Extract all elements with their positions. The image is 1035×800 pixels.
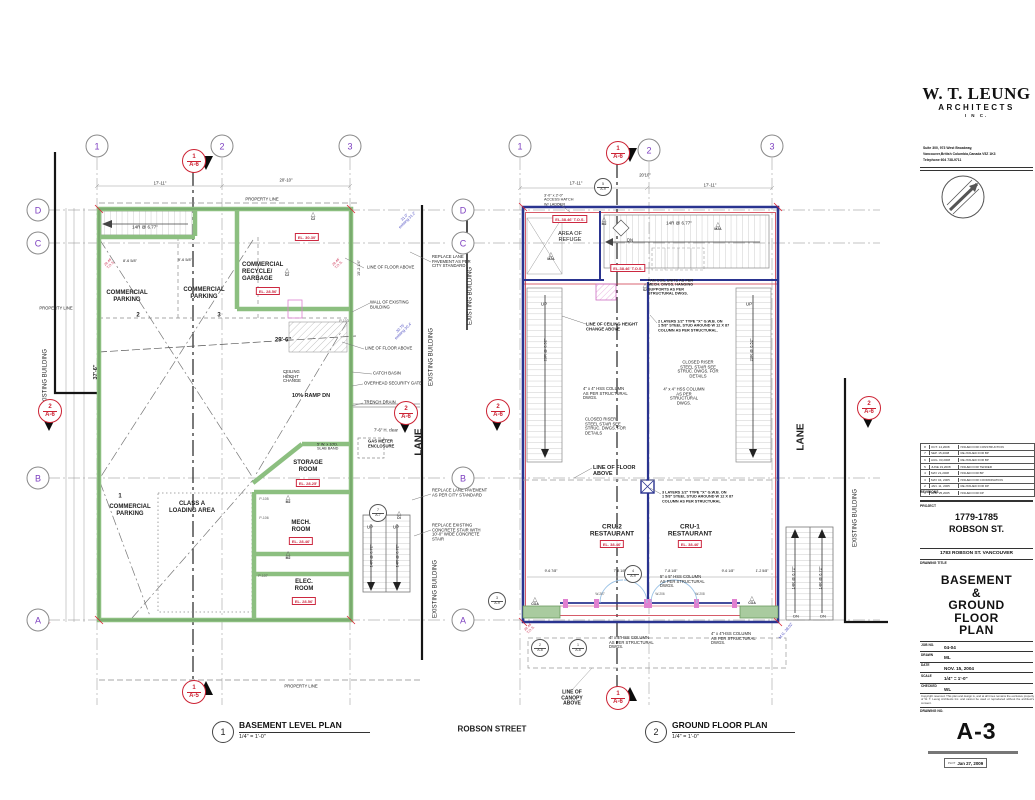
drawing-sheet: COMMERCIAL PARKING2COMMERCIAL PARKING3CO… xyxy=(0,0,1035,800)
section-sheet: A-6 xyxy=(864,409,874,416)
plan-label: TRENCH DRAIN xyxy=(364,401,396,406)
plan-label: COMMERCIAL RECYCLE/ GARBAGE xyxy=(242,262,283,282)
section-marker: 2A-6 xyxy=(486,399,508,421)
detail-sheet: A-8 xyxy=(575,649,581,653)
field-label: JOB NO. xyxy=(921,643,934,647)
section-number: 1 xyxy=(611,691,626,699)
plan-label: 28.46' T.O.S. xyxy=(332,258,344,270)
plan-label: UP xyxy=(541,301,547,306)
section-sheet: A-6 xyxy=(613,699,623,706)
plan-label: 29'-6" xyxy=(275,338,291,345)
project-name: 1779-1785 ROBSON ST. xyxy=(920,511,1033,535)
plan-label: EXISTING BUILDING xyxy=(429,328,436,386)
elevation-tag: EL. 28.25' xyxy=(296,479,320,487)
section-number: 1 xyxy=(187,154,202,162)
detail-sheet: A-8 xyxy=(537,649,543,653)
section-bubble: 2A-6 xyxy=(486,399,510,423)
revision-table: 8OCT. 14,2008ISSUED FOR CONSTRUCTION7SEP… xyxy=(920,443,1035,497)
grid-bubble: 1 xyxy=(86,135,109,158)
section-sheet: A-6 xyxy=(493,412,503,419)
detail-sheet: A-7 xyxy=(375,514,381,518)
plan-label: CLOSED RISER STEEL STAIR SEE STRUC. DWGS… xyxy=(678,361,719,380)
plan-label: 5" x 5" HSS COLUMN AS PER STRUCTURAL DWG… xyxy=(660,575,705,589)
plan-label: 1 xyxy=(118,494,121,501)
section-bubble: 1A-6 xyxy=(182,149,206,173)
section-sheet: A-6 xyxy=(613,154,623,161)
section-number: 2 xyxy=(862,401,877,409)
plan-label: 17'-11" xyxy=(570,182,583,187)
plan-label: 3 LAYERS 1/2" TYPE "X" G.W.B. ON 1 5/8" … xyxy=(662,491,733,504)
field-value: NOV. 15, 2004 xyxy=(944,666,974,671)
firm-inc: I N C. xyxy=(920,113,1033,118)
field-value: 1/4" = 1'-0" xyxy=(944,676,968,681)
section-marker: 2A-6 xyxy=(394,401,416,423)
field-label: SCALE xyxy=(921,674,932,678)
detail-marker: 3A-9 xyxy=(488,592,506,610)
plan-label: 38.46' T.O.S. xyxy=(524,623,536,635)
copyright-note: Copyright reserved. This plan and design… xyxy=(920,695,1035,705)
plan-label: W-208 xyxy=(695,593,704,597)
plan-label: UP xyxy=(393,524,399,529)
plan-label: CEILING HEIGHT CHANGE xyxy=(283,370,301,384)
grid-bubble: D xyxy=(27,199,50,222)
wall-type-marker: △S2 xyxy=(643,284,648,293)
wall-type-label: M2 xyxy=(602,223,607,226)
wall-type-label: COA xyxy=(531,603,539,606)
plan-label: 9'-6 1/8" xyxy=(722,570,735,574)
section-sheet: A-6 xyxy=(45,412,55,419)
plan-label: 15'-2 1/4" xyxy=(357,260,361,276)
plan-label: AREA OF REFUGE xyxy=(558,231,582,243)
plan-label: WALL OF EXISTING BUILDING xyxy=(370,300,409,309)
plan-label: 17'-11" xyxy=(704,184,717,189)
grid-bubble: B xyxy=(452,467,475,490)
plan-label: DN xyxy=(627,239,633,244)
plan-label: 23R @ 6.52" xyxy=(750,339,755,362)
field-value: ML xyxy=(944,655,951,660)
revision-note: ISSUED FOR BP xyxy=(959,471,1034,475)
plan-label: 1'-2 5/8" xyxy=(756,570,769,574)
annotation-layer: COMMERCIAL PARKING2COMMERCIAL PARKING3CO… xyxy=(0,0,1035,800)
project-address: 1783 ROBSON ST. VANCOUVER xyxy=(920,551,1033,556)
section-marker: 2A-6 xyxy=(857,396,879,418)
plan-label: FAN COIL UNITS AS PER MECH. DWGS. HANGIN… xyxy=(648,278,693,295)
elevation-tag: EL. 38.46' xyxy=(600,540,624,548)
section-marker: 1A-6 xyxy=(606,686,628,708)
plan-label: 7'-8 1/8" xyxy=(665,570,678,574)
wall-type-marker: △COA xyxy=(531,598,539,607)
section-number: 1 xyxy=(611,146,626,154)
plan-label: REPLACE EXISTING CONCRETE STAIR WITH 10'… xyxy=(432,524,481,543)
section-number: 2 xyxy=(399,406,414,414)
plan-label: 9'-6 7/8" xyxy=(545,570,558,574)
plan-label: CLOSED RISER STEEL STAIR SEE STRUC. DWGS… xyxy=(585,418,626,437)
revision-row: 3MAY 04, 2005ISSUED FOR COORDINATION xyxy=(921,477,1034,484)
section-number: 2 xyxy=(43,404,58,412)
plan-label: 14R @ 6.72" xyxy=(792,567,797,590)
elevation-tag: EL.38.46' T.O.S. xyxy=(552,215,587,223)
revision-date: OCT. 14,2008 xyxy=(930,445,959,449)
plan-label: DN xyxy=(820,615,826,620)
plan-label: ELEC. ROOM xyxy=(295,579,314,593)
drawing-no-label: DRAWING NO. xyxy=(920,709,1033,713)
plan-label: COMMERCIAL PARKING xyxy=(106,290,147,304)
revision-note: RE-ISSUED FOR BP xyxy=(959,451,1034,455)
revision-note: ISSUED FOR CONSTRUCTION xyxy=(959,445,1034,449)
plan-label: UP xyxy=(367,524,373,529)
plan-label: ROBSON STREET xyxy=(458,724,527,733)
plan-label: P-106 xyxy=(259,517,268,521)
revision-no: 5 xyxy=(921,465,930,469)
plan-label: COMMERCIAL PARKING xyxy=(109,504,150,518)
elevation-tag: EL. 28.56' xyxy=(256,287,280,295)
plan-label: CLASS A LOADING AREA xyxy=(169,501,215,515)
revision-no: 6 xyxy=(921,458,930,462)
caption-number: 2 xyxy=(645,721,667,743)
plan-label: 8'-6 5/8" xyxy=(123,259,137,263)
plan-label: 14R @ 6.72" xyxy=(396,545,401,568)
wall-type-marker: △C2 xyxy=(285,269,290,278)
plan-label: LANE xyxy=(413,428,424,455)
revision-note: ISSUED FOR TENDER xyxy=(959,465,1034,469)
field-label: DATE xyxy=(921,663,929,667)
wall-type-marker: △DI xyxy=(397,512,402,521)
elevation-tag: EL. 28.46' xyxy=(289,537,313,545)
drawing-title-label: DRAWING TITLE xyxy=(920,561,1033,565)
wall-type-label: DI xyxy=(397,517,402,520)
revision-row: 7SEP. 15,2008RE-ISSUED FOR BP xyxy=(921,451,1034,458)
grid-bubble: C xyxy=(452,232,475,255)
firm-address-1: Suite 300, 973 West Broadway, xyxy=(920,146,1035,151)
rule xyxy=(928,751,1018,754)
section-number: 2 xyxy=(491,404,506,412)
detail-marker: 1A-8 xyxy=(569,639,587,657)
revision-no: 3 xyxy=(921,478,930,482)
plan-label: 14R @ 6.72" xyxy=(370,545,375,568)
plan-label: LINE OF CEILING HEIGHT CHANGE ABOVE xyxy=(586,322,638,331)
plan-label: LINE OF FLOOR ABOVE xyxy=(593,465,635,477)
grid-bubble: 3 xyxy=(761,135,784,158)
wall-type-marker: △M2 xyxy=(286,496,291,505)
revisions-label: REVISIONS xyxy=(920,490,1033,494)
grid-bubble: 2 xyxy=(211,135,234,158)
revision-note: ISSUED FOR COORDINATION xyxy=(959,478,1034,482)
grid-bubble: 2 xyxy=(638,139,661,162)
plan-label: 3 xyxy=(217,313,220,320)
wall-type-label: M2A xyxy=(714,228,721,231)
section-bubble: 1A-6 xyxy=(606,141,630,165)
plan-label: 4" x 4"HSS COLUMN AS PER STRUCTURAL DWGS… xyxy=(711,632,756,646)
wall-type-label: S2 xyxy=(643,289,648,292)
plan-label: LINE OF FLOOR ABOVE xyxy=(365,347,412,352)
revision-date: JUNE 19,2008 xyxy=(930,465,959,469)
wall-type-label: M2 xyxy=(286,557,291,560)
firm-address-2: Vancouver,British Columbia,Canada V5Z 1K… xyxy=(920,152,1035,157)
section-marker: 1A-5 xyxy=(182,680,204,702)
rule xyxy=(920,548,1033,549)
plan-label: DN xyxy=(793,615,799,620)
grid-bubble: A xyxy=(27,609,50,632)
plan-label: PROPERTY LINE xyxy=(284,685,317,690)
drawing-title: BASEMENT & GROUND FLOOR PLAN xyxy=(920,574,1033,637)
firm-type: ARCHITECTS xyxy=(920,103,1033,112)
revision-row: 4MAY 21,2008ISSUED FOR BP xyxy=(921,470,1034,477)
plan-label: CRU-2 RESTAURANT xyxy=(590,524,634,539)
plan-label: PROPERTY LINE xyxy=(245,198,278,203)
section-bubble: 2A-6 xyxy=(38,399,62,423)
plan-label: W-207 xyxy=(595,593,604,597)
section-marker: 2A-6 xyxy=(38,399,60,421)
plan-label: 4" x 4"HSS COLUMN AS PER STRUCTURAL DWGS… xyxy=(609,636,654,650)
field-label: CHECKED xyxy=(921,684,937,688)
wall-type-label: C2 xyxy=(311,218,316,221)
caption-number: 1 xyxy=(212,721,234,743)
sheet-number: A-3 xyxy=(920,718,1033,745)
detail-marker: 4A-9 xyxy=(624,565,642,583)
firm-name: W. T. LEUNG xyxy=(920,84,1033,104)
elevation-tag: EL.38.46' T.O.S. xyxy=(610,264,645,272)
revision-date: AUG. 03,2008 xyxy=(930,458,959,462)
plan-label: P-105 xyxy=(259,498,268,502)
rule xyxy=(920,559,1033,560)
rule xyxy=(920,500,1033,502)
detail-sheet: A-9 xyxy=(630,575,636,579)
plot-date-box: PLOT Jan 27, 2009 xyxy=(944,758,987,768)
plan-label: 14R @ 6.72" xyxy=(819,567,824,590)
plan-label: 3'-0" x 2'-0" ACCESS HATCH W/ LADDER xyxy=(544,194,573,207)
plan-label: LINE OF CANOPY ABOVE xyxy=(561,691,582,708)
section-sheet: A-6 xyxy=(401,414,411,421)
plan-label: 4" x 4" HSS COLUMN AS PER STRUCTURAL DWG… xyxy=(663,388,704,407)
revision-no: 4 xyxy=(921,471,930,475)
wall-type-label: M2 xyxy=(286,501,291,504)
revision-date: MAY 21,2008 xyxy=(930,471,959,475)
wall-type-label: M2A xyxy=(547,258,554,261)
section-marker: 1A-6 xyxy=(606,141,628,163)
plot-date-prefix: PLOT xyxy=(948,761,955,765)
caption-scale: 1/4" = 1'-0" xyxy=(672,734,795,740)
revision-date: MAY 04, 2005 xyxy=(930,478,959,482)
plan-label: REPLACE LANE PAVEMENT AS PER CITY STANDA… xyxy=(432,255,471,269)
plan-label: 14R @ 6.77" xyxy=(666,220,692,225)
plan-label: 4" x 4" HSS COLUMN AS PER STRUCTURAL DWG… xyxy=(583,387,628,401)
plan-label: 20'-10" xyxy=(280,179,293,184)
revision-no: 8 xyxy=(921,445,930,449)
rule xyxy=(920,167,1033,171)
detail-sheet: A-9 xyxy=(600,188,606,192)
caption-title: GROUND FLOOR PLAN xyxy=(672,720,795,733)
plan-label: STORAGE ROOM xyxy=(293,460,323,474)
rule xyxy=(920,707,1033,708)
wall-type-marker: △M2A xyxy=(714,223,721,232)
detail-marker: 5A-9 xyxy=(594,178,612,196)
plan-label: LINE OF FLOOR ABOVE xyxy=(367,266,414,271)
detail-marker: 7A-7 xyxy=(369,504,387,522)
plan-label: 7'-6" H. clear xyxy=(374,429,398,434)
project-label: PROJECT xyxy=(920,504,1033,508)
plan-label: UP xyxy=(746,301,752,306)
plan-label: OVERHEAD SECURITY GATE xyxy=(364,382,422,387)
section-bubble: 2A-6 xyxy=(857,396,881,420)
caption-scale: 1/4" = 1'-0" xyxy=(239,734,370,740)
plan-label: 20'10" xyxy=(639,174,651,179)
plan-label: PROPERTY LINE xyxy=(39,307,72,312)
plan-label: 5' W. x 10'D. SLAB BAND xyxy=(317,443,338,452)
plan-label: 37'-6" xyxy=(93,365,99,380)
plan-label: 2 xyxy=(136,313,139,320)
section-marker: 1A-6 xyxy=(182,149,204,171)
plan-label: CRU-1 RESTAURANT xyxy=(668,524,712,539)
plan-label: M.G. 38.02' xyxy=(778,622,794,640)
elevation-tag: EL. 38.46' xyxy=(678,540,702,548)
detail-marker: 2A-8 xyxy=(531,639,549,657)
section-number: 1 xyxy=(187,685,202,693)
section-sheet: A-6 xyxy=(189,162,199,169)
elevation-tag: EL. 30.30' xyxy=(295,233,319,241)
plot-date: Jan 27, 2009 xyxy=(957,761,983,766)
revision-note: RE-ISSUED FOR BP xyxy=(959,458,1034,462)
wall-type-marker: △C2 xyxy=(311,213,316,222)
caption-text: BASEMENT LEVEL PLAN1/4" = 1'-0" xyxy=(239,720,370,740)
plan-label: MECH. ROOM xyxy=(291,520,310,534)
plan-caption: 2GROUND FLOOR PLAN1/4" = 1'-0" xyxy=(645,720,795,743)
plan-label: EXISTING BUILDING xyxy=(433,560,440,618)
plan-label: 28.46' T.O.S. xyxy=(104,258,116,270)
plan-label: 9'-6 5/8" xyxy=(178,258,192,262)
section-bubble: 1A-6 xyxy=(606,686,630,710)
caption-title: BASEMENT LEVEL PLAN xyxy=(239,720,370,733)
wall-type-marker: △M2 xyxy=(602,218,607,227)
field-label: DRAWN xyxy=(921,653,933,657)
section-bubble: 1A-5 xyxy=(182,680,206,704)
caption-text: GROUND FLOOR PLAN1/4" = 1'-0" xyxy=(672,720,795,740)
plan-label: GAS METER ENCLOSURE xyxy=(368,439,394,448)
revision-date: SEP. 15,2008 xyxy=(930,451,959,455)
elevation-tag: EL. 28.56' xyxy=(292,597,316,605)
wall-type-marker: △M2 xyxy=(286,552,291,561)
plan-label: 23R @ 6.52" xyxy=(544,339,549,362)
revision-row: 8OCT. 14,2008ISSUED FOR CONSTRUCTION xyxy=(921,444,1034,451)
grid-bubble: 3 xyxy=(339,135,362,158)
plan-label: 17'-11" xyxy=(154,182,167,187)
revision-no: 2 xyxy=(921,484,930,488)
plan-label: LANE xyxy=(795,423,806,450)
plan-label: EXISTING BUILDING xyxy=(468,267,475,325)
plan-label: W-206 xyxy=(655,593,664,597)
wall-type-marker: △COA xyxy=(748,597,756,606)
revision-note: RE-ISSUED FOR DP xyxy=(959,484,1034,488)
revision-row: 6AUG. 03,2008RE-ISSUED FOR BP xyxy=(921,457,1034,464)
revision-no: 7 xyxy=(921,451,930,455)
section-sheet: A-5 xyxy=(189,693,199,700)
plan-label: 2 LAYERS 1/2" TYPE "X" G.W.B. ON 1 5/8" … xyxy=(658,320,729,333)
firm-address-3: Telephone 604 738-9711 xyxy=(920,158,1035,163)
section-bubble: 2A-6 xyxy=(394,401,418,425)
revision-date: JAN. 11, 2005 xyxy=(930,484,959,488)
grid-bubble: D xyxy=(452,199,475,222)
plan-label: P-107 xyxy=(258,575,267,579)
wall-type-label: COA xyxy=(748,602,756,605)
plan-label: REPLACE LANE PAVEMENT AS PER CITY STANDA… xyxy=(432,488,487,497)
plan-label: P-103 xyxy=(339,320,348,324)
grid-bubble: B xyxy=(27,467,50,490)
revision-row: 5JUNE 19,2008ISSUED FOR TENDER xyxy=(921,464,1034,471)
plan-label: CATCH BASIN xyxy=(373,372,401,377)
plan-label: 14R @ 6.77" xyxy=(132,224,158,229)
grid-bubble: 1 xyxy=(509,135,532,158)
grid-bubble: A xyxy=(452,609,475,632)
plan-label: EXISTING BUILDING xyxy=(853,489,860,547)
wall-type-label: C2 xyxy=(285,274,290,277)
field-value: WL xyxy=(944,687,951,692)
wall-type-marker: △M2A xyxy=(547,253,554,262)
plan-label: 10% RAMP DN xyxy=(292,393,330,399)
field-value: 04-04 xyxy=(944,645,956,650)
detail-sheet: A-9 xyxy=(494,602,500,606)
grid-bubble: C xyxy=(27,232,50,255)
plan-label: 30.75' existing 30.4' xyxy=(391,319,413,341)
plan-caption: 1BASEMENT LEVEL PLAN1/4" = 1'-0" xyxy=(212,720,370,743)
plan-label: COMMERCIAL PARKING xyxy=(183,287,224,301)
plan-label: 31.0' existing 31.2' xyxy=(395,208,417,230)
